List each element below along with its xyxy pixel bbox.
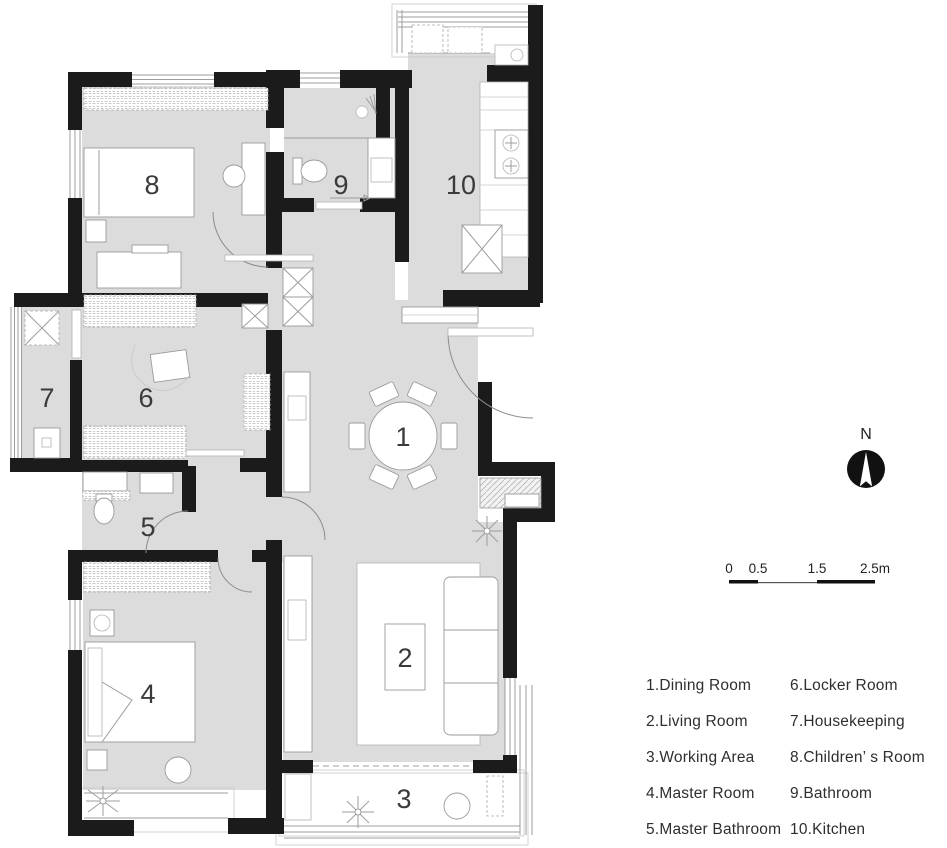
scale-bar: 0 0.5 1.5 2.5m [718,558,898,592]
room-label-dining: 1 [395,422,410,452]
scale-label-0: 0 [725,561,733,576]
legend-column-1: 1.Dining Room 2.Living Room 3.Working Ar… [646,668,790,848]
legend: 1.Dining Room 2.Living Room 3.Working Ar… [646,668,936,848]
legend-item-working: 3.Working Area [646,740,790,776]
legend-item-locker: 6.Locker Room [790,668,925,704]
legend-column-2: 6.Locker Room 7.Housekeeping 8.Children’… [790,668,925,848]
compass: N [843,426,889,492]
plant-icon [342,796,374,828]
legend-item-living: 2.Living Room [646,704,790,740]
legend-item-master-bathroom: 5.Master Bathroom [646,812,790,848]
room-label-bathroom: 9 [333,170,348,200]
room-label-working: 3 [396,784,411,814]
legend-item-master: 4.Master Room [646,776,790,812]
floor-plan-page: 1 2 3 4 5 6 7 8 9 10 N 0 0.5 1.5 2.5m 1.… [0,0,947,846]
working-area-furniture [285,774,503,828]
room-label-housekeeping: 7 [39,383,54,413]
legend-item-bathroom: 9.Bathroom [790,776,925,812]
room-label-living: 2 [397,643,412,673]
scale-label-05: 0.5 [749,561,768,576]
scale-label-15: 1.5 [808,561,827,576]
plant-icon [472,516,502,546]
legend-item-dining: 1.Dining Room [646,668,790,704]
north-label: N [843,426,889,444]
room-label-master-bathroom: 5 [140,512,155,542]
plant-icon [86,786,120,816]
room-label-kitchen: 10 [446,170,476,200]
room-label-childrens: 8 [144,170,159,200]
legend-item-housekeeping: 7.Housekeeping [790,704,925,740]
room-label-master: 4 [140,679,155,709]
scale-label-25m: 2.5m [860,561,890,576]
entry-niche [480,478,541,508]
north-arrow-icon [843,446,889,490]
legend-item-kitchen: 10.Kitchen [790,812,925,848]
room-label-locker: 6 [138,383,153,413]
legend-item-childrens: 8.Children’ s Room [790,740,925,776]
